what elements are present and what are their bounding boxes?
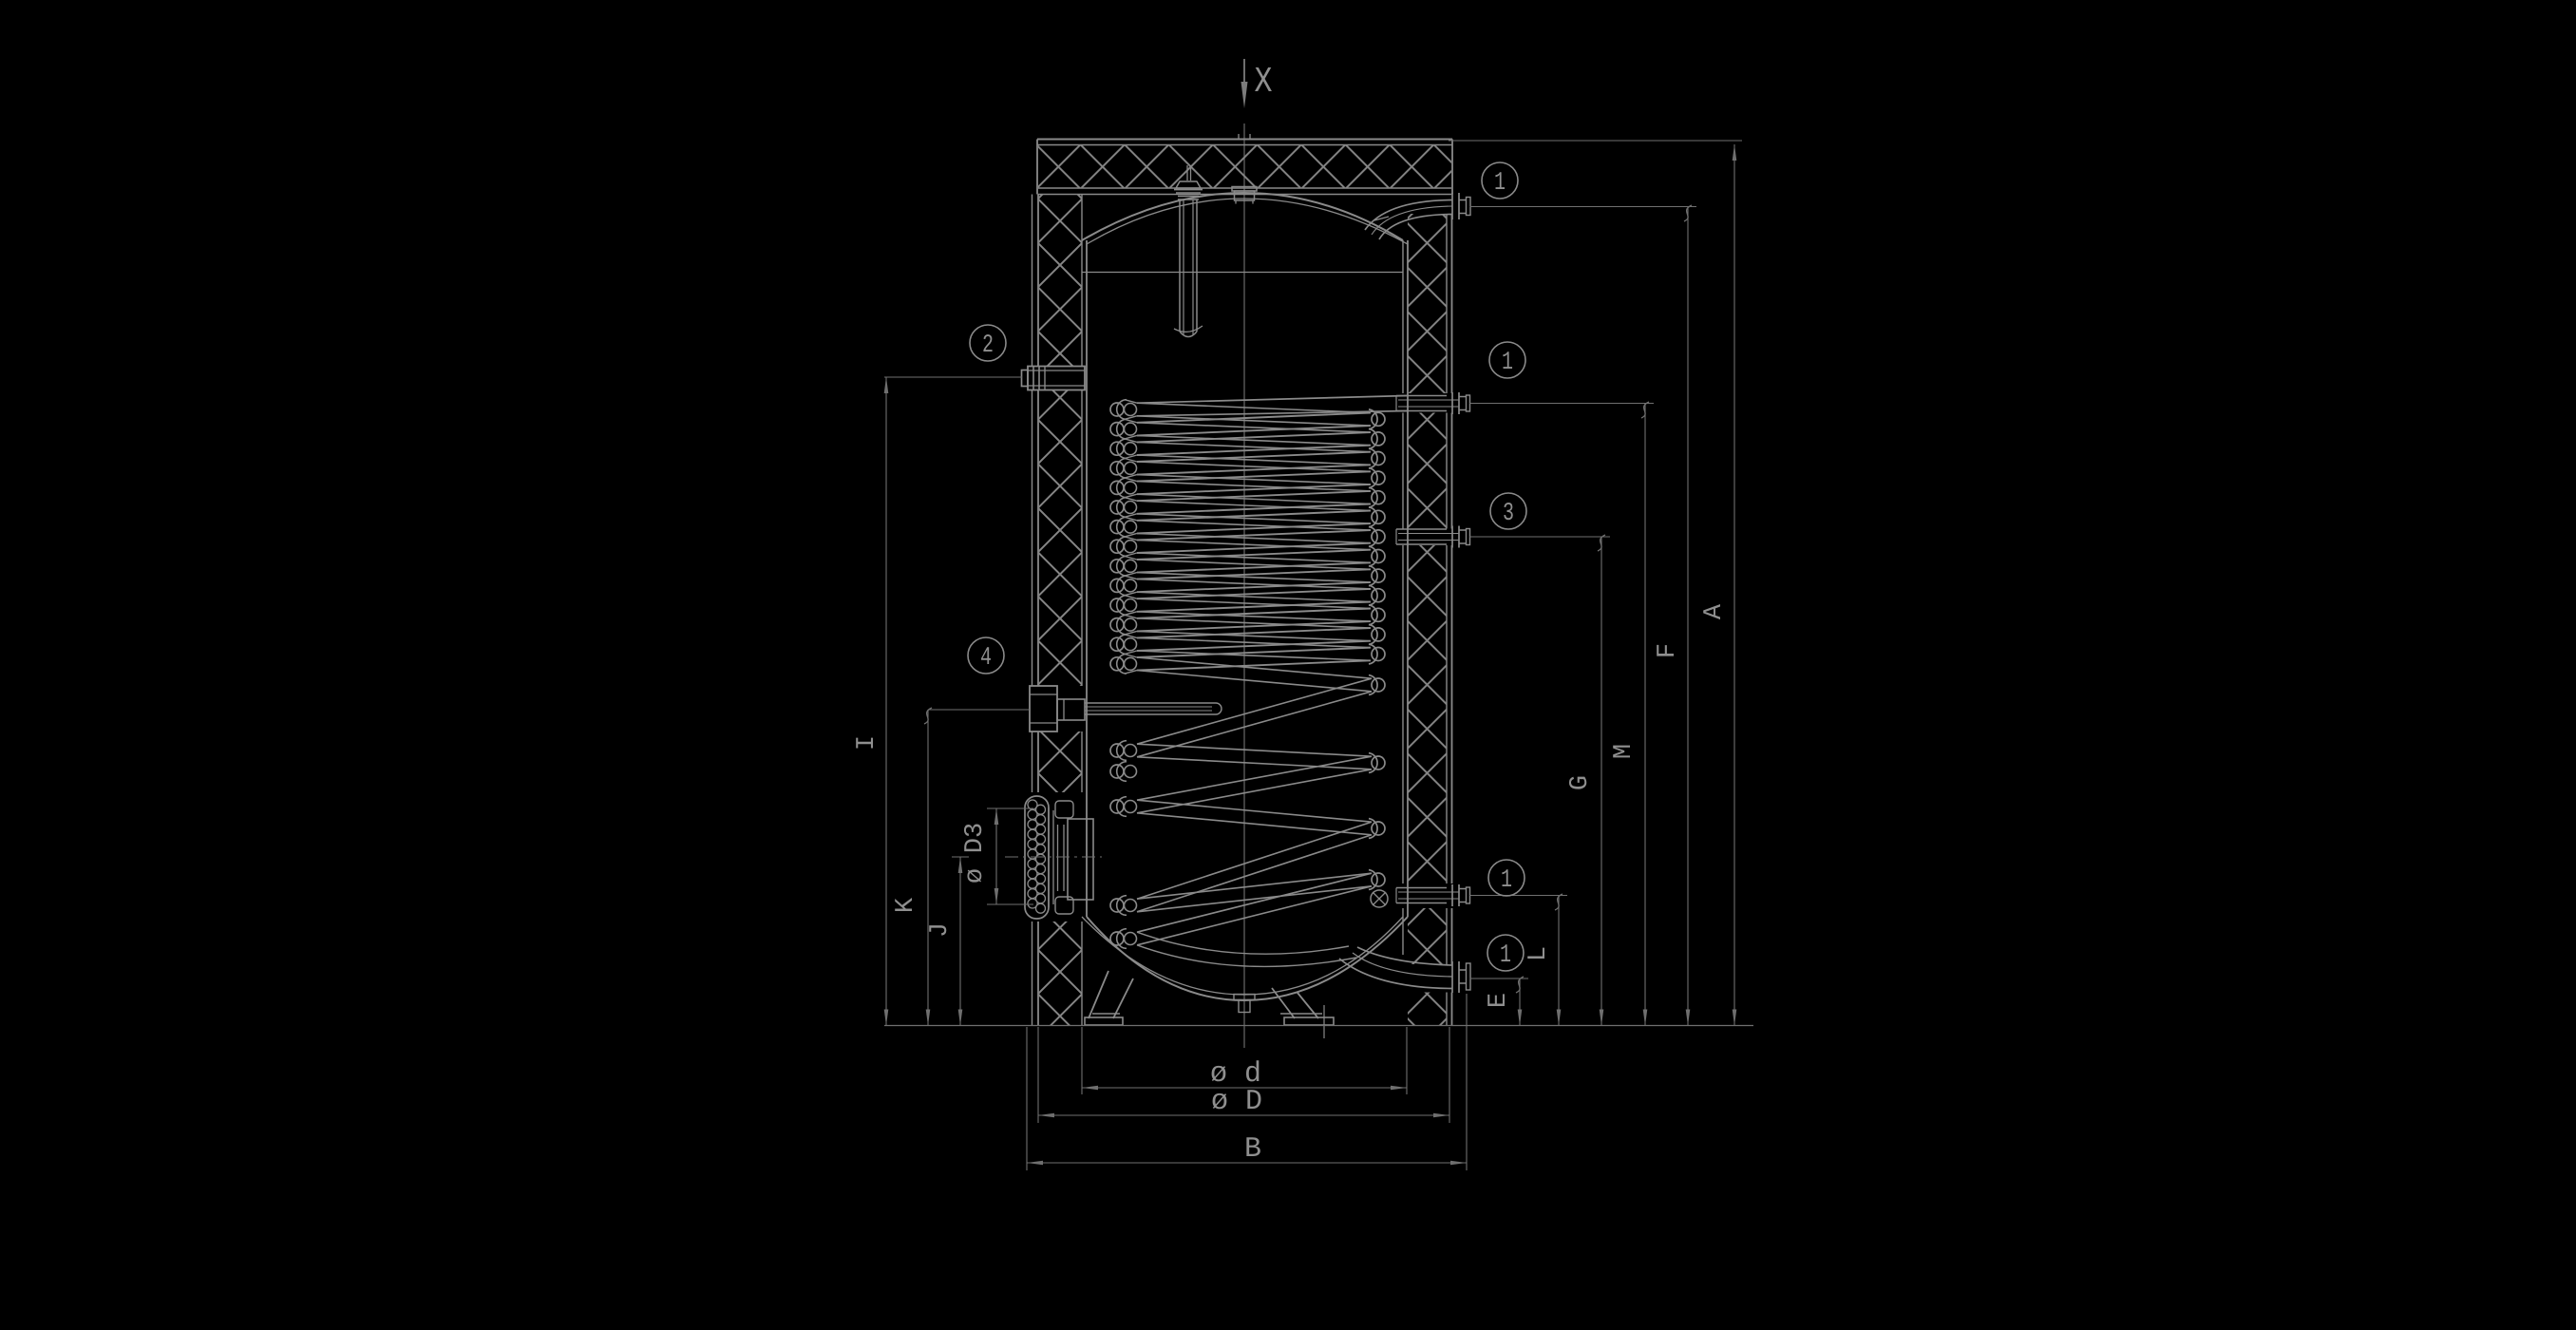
svg-text:G: G — [1566, 775, 1595, 790]
svg-text:D3: D3 — [961, 823, 990, 853]
svg-text:4: 4 — [980, 644, 992, 673]
svg-text:L: L — [1525, 946, 1553, 961]
svg-text:2: 2 — [982, 332, 994, 360]
svg-text:A: A — [1700, 603, 1729, 619]
svg-text:B: B — [1244, 1133, 1261, 1166]
svg-text:3: 3 — [1503, 500, 1514, 528]
svg-text:K: K — [892, 897, 920, 913]
svg-text:1: 1 — [1502, 349, 1513, 377]
svg-text:1: 1 — [1494, 169, 1506, 198]
svg-text:X: X — [1255, 62, 1273, 103]
svg-text:ø: ø — [961, 868, 990, 883]
svg-text:E: E — [1485, 993, 1513, 1008]
svg-text:1: 1 — [1500, 941, 1511, 970]
svg-text:J: J — [926, 922, 955, 938]
svg-text:F: F — [1654, 643, 1682, 658]
svg-text:ø D: ø D — [1211, 1086, 1262, 1118]
svg-text:I: I — [853, 735, 881, 750]
svg-text:1: 1 — [1501, 866, 1512, 895]
svg-text:M: M — [1610, 744, 1638, 759]
